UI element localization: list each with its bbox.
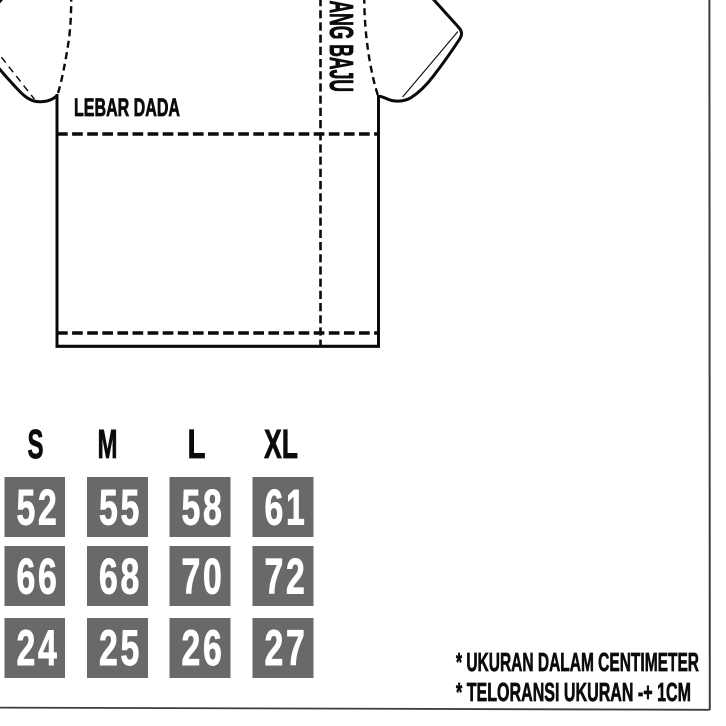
svg-text:58: 58	[182, 480, 225, 536]
svg-text:55: 55	[99, 480, 142, 536]
svg-text:70: 70	[182, 549, 225, 605]
svg-text:PANJANG BAJU: PANJANG BAJU	[323, 0, 360, 92]
svg-text:* TELORANSI UKURAN -+ 1CM: * TELORANSI UKURAN -+ 1CM	[456, 677, 691, 707]
svg-text:26: 26	[182, 620, 225, 676]
svg-text:M: M	[98, 421, 118, 467]
svg-text:XL: XL	[264, 421, 298, 467]
svg-text:66: 66	[17, 549, 60, 605]
svg-text:68: 68	[99, 549, 142, 605]
svg-text:* UKURAN DALAM CENTIMETER: * UKURAN DALAM CENTIMETER	[456, 647, 699, 677]
svg-text:L: L	[188, 421, 206, 467]
svg-text:27: 27	[265, 620, 308, 676]
svg-text:25: 25	[99, 620, 142, 676]
svg-text:72: 72	[265, 549, 308, 605]
svg-text:S: S	[28, 421, 44, 467]
svg-text:LEBAR DADA: LEBAR DADA	[74, 94, 180, 122]
svg-text:52: 52	[17, 480, 60, 536]
svg-text:24: 24	[17, 620, 60, 676]
svg-text:61: 61	[265, 480, 308, 536]
